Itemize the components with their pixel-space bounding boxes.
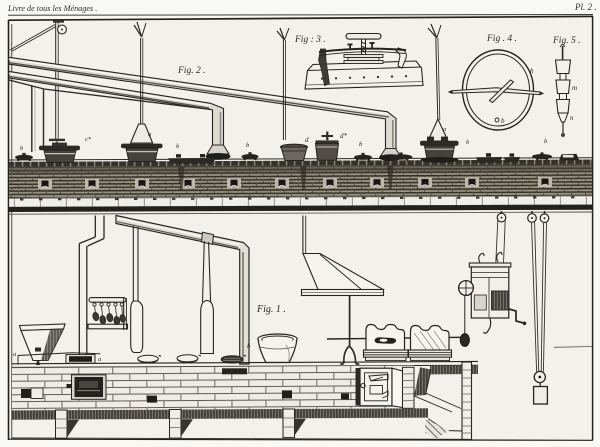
svg-text:h: h	[530, 67, 534, 75]
svg-text:d: d	[305, 136, 309, 144]
svg-text:n: n	[570, 114, 574, 122]
svg-text:a: a	[13, 351, 16, 358]
svg-text:Livre de tous les Ménages .: Livre de tous les Ménages .	[7, 4, 97, 13]
svg-text:Fig. 2 .: Fig. 2 .	[177, 66, 205, 76]
svg-text:Pl. 2 .: Pl. 2 .	[574, 2, 597, 12]
svg-text:m: m	[572, 84, 577, 92]
svg-text:Fig : 3 .: Fig : 3 .	[294, 35, 326, 45]
svg-text:Fig . 4 .: Fig . 4 .	[486, 34, 517, 44]
svg-text:c*: c*	[85, 136, 92, 143]
svg-text:Fig. 1 .: Fig. 1 .	[256, 304, 286, 315]
svg-text:d*: d*	[340, 132, 348, 140]
svg-text:a: a	[98, 356, 101, 363]
svg-text:a: a	[443, 126, 446, 133]
svg-text:a: a	[148, 131, 151, 138]
svg-text:Fig. 5 .: Fig. 5 .	[552, 36, 580, 46]
svg-text:b: b	[501, 117, 505, 125]
